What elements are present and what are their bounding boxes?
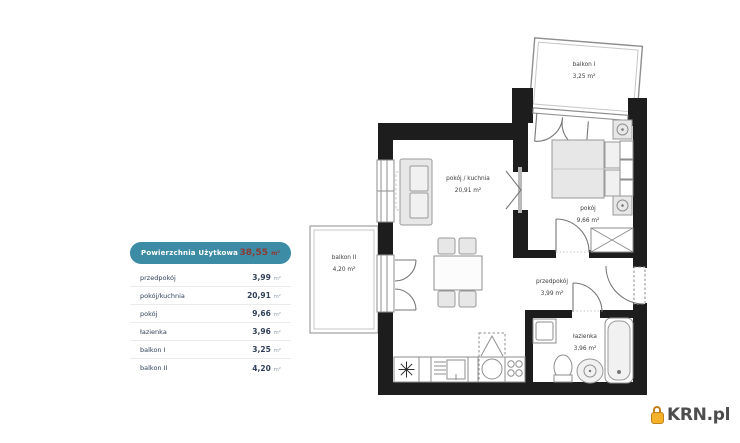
washbasin: [577, 359, 603, 383]
area-row: przedpokój 3,99 m²: [130, 269, 291, 287]
logo-text: KRN.pl: [667, 407, 730, 424]
hall-area: 3,99 m²: [541, 290, 564, 297]
legend-total: 38,55 m²: [240, 248, 281, 258]
sink-symbol: [399, 362, 415, 378]
area-row: balkon II 4,20 m²: [130, 359, 291, 377]
bathtub: [605, 318, 633, 383]
area-legend: Powierzchnia Użytkowa 38,55 m² przedpokó…: [130, 242, 291, 377]
balcony-2-area: 4,20 m²: [333, 266, 356, 273]
balcony-2-name: balkon II: [332, 255, 357, 261]
bathroom-area: 3,96 m²: [574, 345, 597, 352]
sliding-door: [506, 167, 522, 213]
area-row: pokój 9,66 m²: [130, 305, 291, 323]
toilet: [554, 355, 572, 382]
entry-door: [606, 266, 645, 304]
bedroom-name: pokój: [580, 205, 596, 212]
legend-rows: przedpokój 3,99 m² pokój/kuchnia 20,91 m…: [130, 269, 291, 377]
area-row: balkon I 3,25 m²: [130, 341, 291, 359]
krn-logo: KRN.pl: [651, 406, 730, 424]
legend-title: Powierzchnia Użytkowa: [141, 249, 238, 257]
washing-machine: [533, 319, 556, 343]
legend-total-unit: m²: [271, 250, 280, 257]
legend-header: Powierzchnia Użytkowa 38,55 m²: [130, 242, 291, 264]
bed: [552, 140, 620, 198]
bedroom-area: 9,66 m²: [577, 217, 600, 224]
floor-plan-page: Powierzchnia Użytkowa 38,55 m² przedpokó…: [0, 0, 740, 443]
hall-name: przedpokój: [536, 278, 568, 285]
bathroom-name: łazienka: [573, 334, 597, 340]
wardrobe: [591, 228, 633, 252]
floor-plan: balkon I 3,25 m² balkon II 4,20 m²: [300, 20, 665, 400]
area-row: łazienka 3,96 m²: [130, 323, 291, 341]
balcony-1-area: 3,25 m²: [573, 73, 596, 80]
nightstand: [620, 141, 633, 196]
living-room-area: 20,91 m²: [455, 187, 481, 194]
dining-table: [434, 238, 482, 307]
area-row: pokój/kuchnia 20,91 m²: [130, 287, 291, 305]
living-room-name: pokój / kuchnia: [446, 175, 490, 182]
window: [377, 160, 401, 222]
balcony-1-name: balkon I: [573, 62, 596, 68]
kitchen-counter: [394, 333, 525, 382]
balcony-2: [310, 226, 378, 333]
sofa: [400, 159, 432, 225]
balcony-2-door: [377, 255, 416, 312]
bathroom-door: [573, 283, 602, 312]
padlock-icon: [651, 406, 664, 424]
